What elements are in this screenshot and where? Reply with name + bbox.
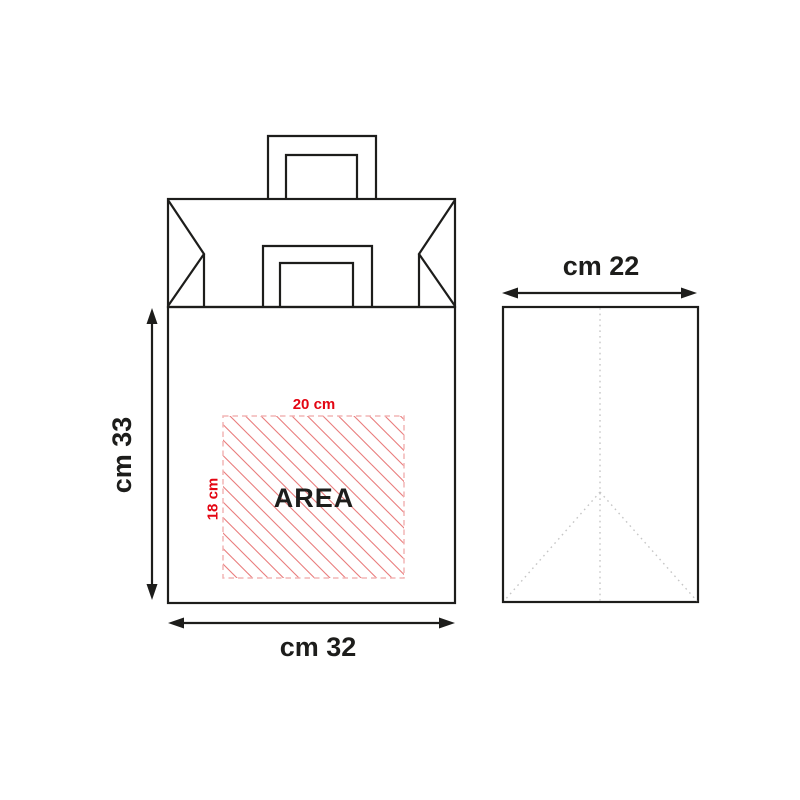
inner-handle-inner: [280, 263, 353, 307]
top-handle-outer: [268, 136, 376, 199]
bag-flap-outline: [168, 199, 455, 307]
side-left-gusset-fold-line: [504, 492, 600, 601]
right-fold-line: [419, 200, 455, 306]
depth-dimension-label: cm 22: [563, 251, 640, 281]
print-area-width-label: 20 cm: [293, 396, 336, 413]
bag-dimensions-diagram: 20 cm 18 cm AREA cm 33 cm 32: [0, 0, 800, 800]
print-area: 20 cm 18 cm AREA: [205, 396, 405, 578]
arrowhead-down-icon: [147, 584, 158, 600]
left-fold-line: [168, 200, 204, 306]
arrowhead-left-icon: [502, 288, 518, 299]
height-dimension-label: cm 33: [107, 417, 137, 494]
top-handle-inner: [286, 155, 357, 199]
print-area-label: AREA: [274, 483, 355, 513]
arrowhead-up-icon: [147, 308, 158, 324]
height-dimension: cm 33: [107, 308, 158, 600]
width-dimension-label: cm 32: [280, 632, 357, 662]
front-view: 20 cm 18 cm AREA cm 33 cm 32: [107, 136, 455, 662]
arrowhead-left-icon: [168, 618, 184, 629]
depth-dimension: cm 22: [502, 251, 697, 299]
print-area-height-label: 18 cm: [205, 478, 222, 521]
side-right-gusset-fold-line: [600, 492, 697, 601]
diagram-canvas: 20 cm 18 cm AREA cm 33 cm 32: [0, 0, 800, 800]
arrowhead-right-icon: [681, 288, 697, 299]
arrowhead-right-icon: [439, 618, 455, 629]
width-dimension: cm 32: [168, 618, 455, 663]
side-view: cm 22: [502, 251, 698, 602]
